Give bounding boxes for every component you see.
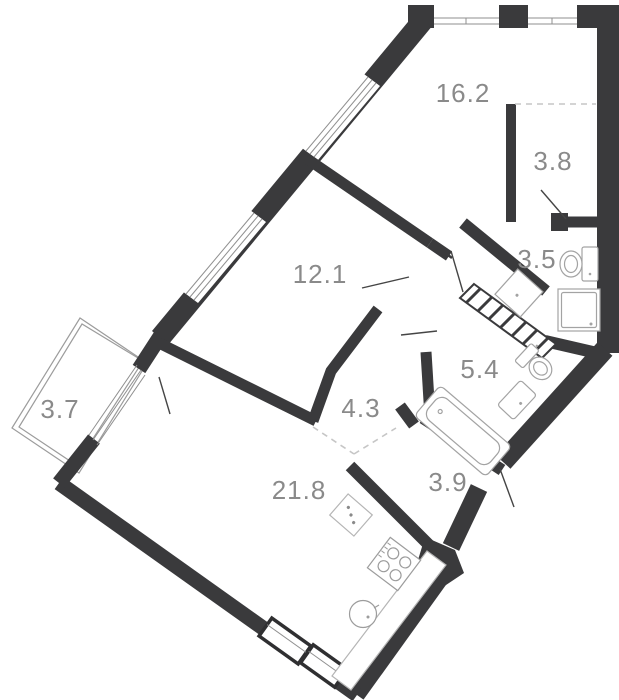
room-area-label-shower-room: 3.5 [517,244,556,274]
room-area-label-bedroom: 12.1 [293,259,348,289]
wall-entry-stub [400,406,414,425]
open-boundary-corridor-kitchen [313,427,354,454]
wall-left-pier-upper [139,332,163,369]
shower-tray-icon [558,289,600,331]
room-area-label-living: 16.2 [436,78,491,108]
wall-bedroom-kitchen [159,343,316,421]
kitchen-cabinet [330,494,373,536]
door-swing-shower-room [451,251,463,292]
door-swing-balcony [159,377,170,414]
floor-plan: 16.2 3.8 3.5 12.1 5.4 4.3 3.7 3.9 21.8 [0,0,619,700]
room-area-label-balcony: 3.7 [40,394,79,424]
room-area-label-corridor: 4.3 [341,393,380,423]
balcony-door-window-unit [89,365,145,445]
bathroom-fixtures [414,247,600,477]
room-area-label-kitchen: 21.8 [272,475,327,505]
door-swing-entrance [500,469,514,507]
bathtub-icon [414,385,511,476]
room-area-label-hall: 3.8 [533,146,572,176]
door-swing-bathroom [401,331,437,335]
toilet-icon-shower-room [560,247,598,281]
floor-plan-page: 16.2 3.8 3.5 12.1 5.4 4.3 3.7 3.9 21.8 [0,0,619,700]
wall-left-pier-lower [59,439,94,483]
open-boundary-corridor-entry [354,428,396,454]
room-area-label-bathroom: 5.4 [460,354,499,384]
door-swing-bedroom [362,277,409,288]
wall-hall-door-stub [551,213,568,231]
bathroom-sink-icon [497,380,536,420]
room-area-label-entry: 3.9 [428,467,467,497]
wall-living-bedroom [306,158,430,243]
